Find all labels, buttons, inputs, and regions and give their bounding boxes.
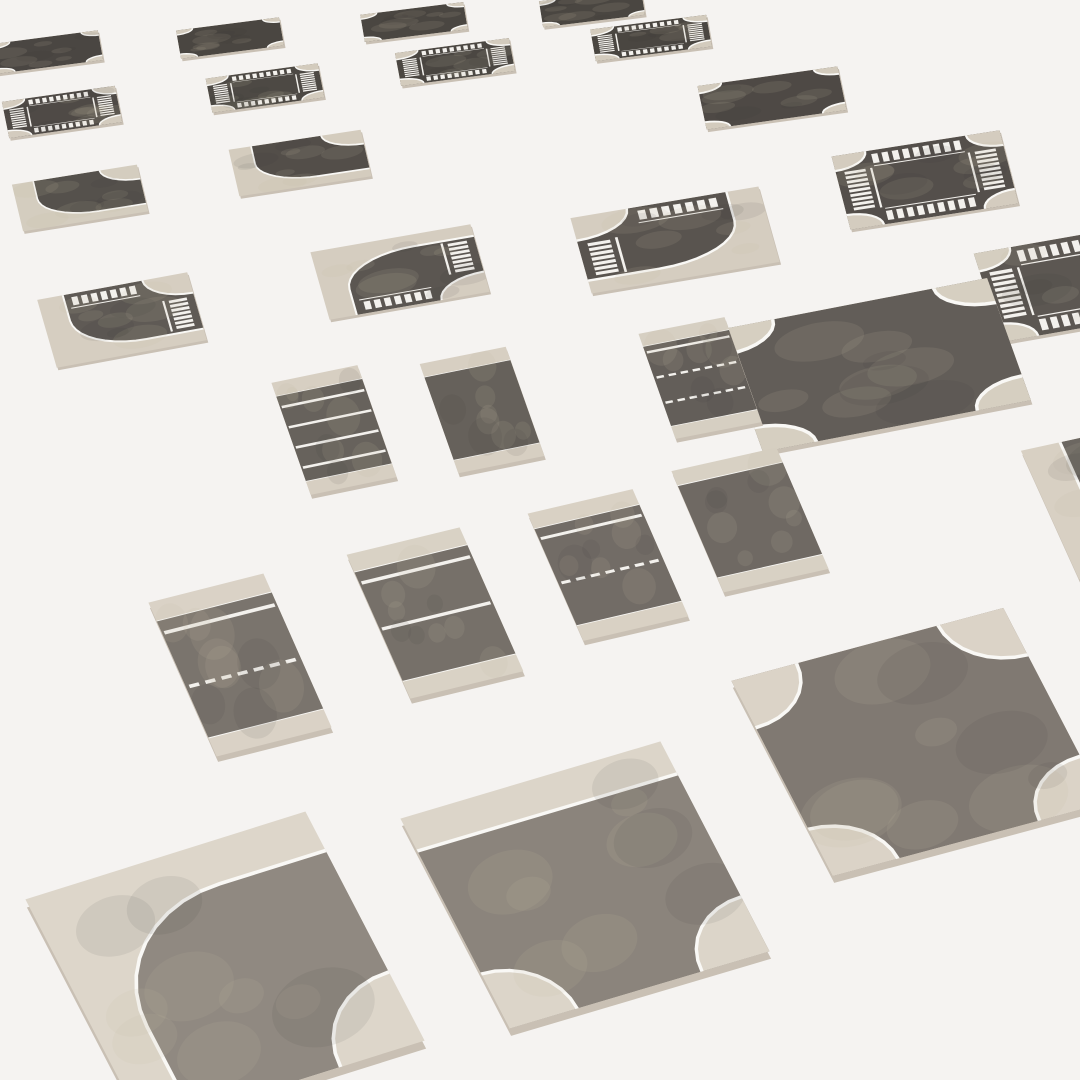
road-tile-scene <box>0 0 1080 1080</box>
render-viewport <box>0 0 1080 1080</box>
